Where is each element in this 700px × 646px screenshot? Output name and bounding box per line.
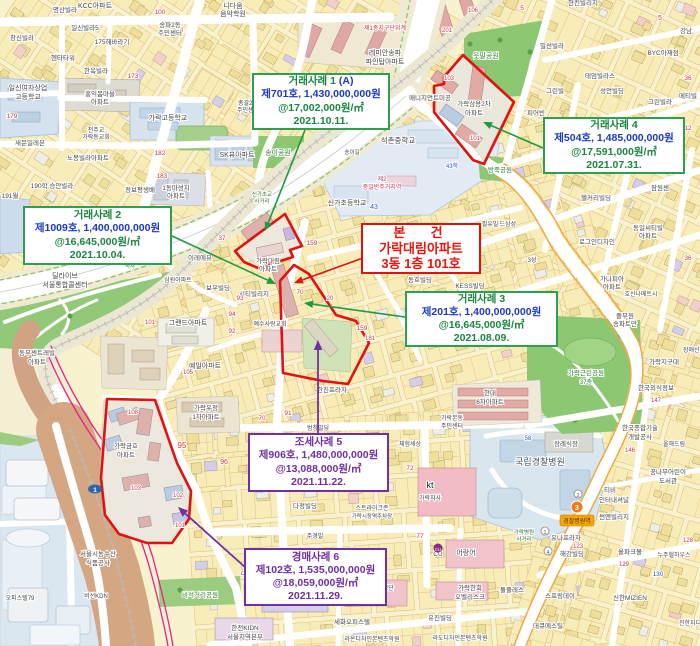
svg-text:신가초교: 신가초교 [252, 190, 272, 198]
svg-text:아파트: 아파트 [639, 231, 657, 240]
svg-text:12: 12 [684, 125, 692, 132]
svg-text:다정빌딩: 다정빌딩 [293, 501, 317, 510]
svg-text:146: 146 [625, 448, 636, 454]
svg-text:43학: 43학 [446, 162, 459, 170]
svg-text:새문일레븐: 새문일레븐 [15, 138, 45, 147]
svg-text:필유빌: 필유빌 [482, 220, 499, 228]
svg-text:둘풀레스: 둘풀레스 [500, 585, 524, 594]
svg-text:77: 77 [416, 533, 424, 540]
svg-text:101: 101 [175, 523, 186, 529]
svg-text:1동마성지: 1동마성지 [162, 183, 190, 192]
svg-text:올해드림: 올해드림 [663, 440, 685, 448]
svg-text:아파트: 아파트 [259, 264, 277, 273]
svg-text:36: 36 [684, 255, 692, 262]
svg-text:도서관: 도서관 [659, 476, 677, 485]
svg-text:노봉빌라아파트: 노봉빌라아파트 [67, 153, 109, 162]
svg-text:현대: 현대 [484, 389, 496, 397]
svg-text:108: 108 [128, 410, 139, 416]
svg-text:173: 173 [128, 73, 139, 80]
svg-text:창신빌라: 창신빌라 [10, 33, 34, 42]
svg-text:잠원센: 잠원센 [651, 183, 669, 192]
svg-text:라도디자인본텐츠학원: 라도디자인본텐츠학원 [432, 634, 487, 642]
svg-text:가락지구대: 가락지구대 [649, 357, 679, 366]
svg-text:159: 159 [307, 240, 318, 247]
svg-text:아파트: 아파트 [603, 282, 621, 291]
svg-text:가락대림: 가락대림 [256, 256, 280, 265]
svg-text:라온디자인본텐츠학원: 라온디자인본텐츠학원 [344, 635, 399, 643]
svg-text:일신빌라5: 일신빌라5 [71, 23, 99, 32]
svg-text:딜라이브: 딜라이브 [52, 271, 78, 280]
svg-text:95: 95 [178, 441, 187, 450]
svg-text:유진빌딩: 유진빌딩 [428, 613, 452, 622]
svg-text:신한MIZIEN: 신한MIZIEN [613, 593, 647, 602]
svg-text:니다움: 니다움 [223, 1, 243, 10]
svg-text:송파트만: 송파트만 [613, 319, 637, 328]
svg-text:오벨리스크: 오벨리스크 [455, 592, 485, 601]
svg-text:3: 3 [575, 505, 579, 512]
svg-text:국립경찰병원: 국립경찰병원 [515, 456, 565, 467]
svg-text:103: 103 [444, 76, 455, 82]
svg-text:보우빌딩: 보우빌딩 [206, 283, 230, 292]
svg-text:BYC아재점: BYC아재점 [647, 48, 678, 57]
svg-text:20: 20 [327, 296, 334, 302]
svg-text:경찰병원역: 경찰병원역 [563, 517, 591, 525]
svg-text:매니지먼트미공: 매니지먼트미공 [409, 93, 451, 102]
svg-text:송이공원: 송이공원 [265, 148, 291, 157]
svg-text:179: 179 [7, 113, 18, 120]
svg-text:CU: CU [435, 547, 442, 552]
svg-text:SK뷰아파트: SK뷰아파트 [219, 150, 255, 159]
svg-text:가락한회: 가락한회 [458, 583, 482, 592]
svg-text:고등학교: 고등학교 [15, 92, 41, 101]
svg-text:가락근린공원: 가락근린공원 [568, 368, 604, 377]
svg-text:182: 182 [155, 150, 166, 157]
svg-text:중일반주거지역: 중일반주거지역 [363, 183, 402, 191]
svg-text:가락병원: 가락병원 [514, 528, 534, 536]
svg-text:올파크몰: 올파크몰 [618, 547, 642, 556]
svg-text:동호빌딩: 동호빌딩 [408, 275, 432, 284]
svg-text:제1종지구단위계: 제1종지구단위계 [364, 24, 406, 32]
svg-text:181: 181 [365, 336, 376, 342]
svg-text:5: 5 [658, 15, 662, 22]
svg-text:아파트: 아파트 [28, 357, 46, 366]
svg-text:음악학원: 음악학원 [220, 9, 246, 18]
svg-text:진한지디: 진한지디 [679, 619, 700, 627]
svg-text:유나프라자: 유나프라자 [551, 533, 581, 542]
svg-text:송이길: 송이길 [344, 148, 359, 156]
svg-text:129: 129 [619, 562, 630, 568]
svg-text:헬커리빌딩: 헬커리빌딩 [581, 193, 611, 202]
svg-text:103: 103 [131, 486, 142, 492]
svg-text:128: 128 [683, 538, 694, 544]
svg-text:동부센트레빌: 동부센트레빌 [19, 348, 55, 357]
svg-text:천주교: 천주교 [88, 126, 105, 134]
svg-text:4: 4 [546, 550, 549, 556]
svg-text:홍익봄마을: 홍익봄마을 [85, 89, 115, 98]
svg-text:개발공사: 개발공사 [628, 432, 652, 441]
svg-text:한국외식정보: 한국외식정보 [638, 383, 674, 392]
svg-text:가락시장역주차장: 가락시장역주차장 [352, 512, 392, 520]
svg-text:183: 183 [157, 173, 168, 180]
svg-text:송파2동: 송파2동 [159, 20, 181, 29]
svg-text:6차아파트: 6차아파트 [476, 397, 504, 406]
svg-text:201: 201 [442, 28, 453, 34]
svg-text:한옥빌라: 한옥빌라 [84, 66, 108, 75]
svg-text:이레에뷰: 이레에뷰 [188, 253, 212, 262]
svg-text:데큐에스틸: 데큐에스틸 [533, 621, 563, 630]
svg-text:방죽공원: 방죽공원 [488, 165, 512, 174]
svg-text:헨타타워: 헨타타워 [51, 53, 75, 62]
svg-text:티비: 티비 [604, 485, 616, 494]
svg-text:석촌중학교: 석촌중학교 [381, 135, 416, 145]
svg-text:한진프라자: 한진프라자 [317, 385, 347, 394]
svg-text:70: 70 [258, 415, 266, 422]
svg-text:58: 58 [525, 436, 532, 442]
svg-text:가락금호: 가락금호 [114, 441, 138, 450]
svg-text:꿍나무어린이: 꿍나무어린이 [650, 467, 686, 476]
svg-text:장례식장: 장례식장 [554, 439, 578, 448]
svg-text:현킨빌리지: 현킨빌리지 [568, 0, 598, 7]
svg-text:메티빌: 메티빌 [679, 91, 697, 100]
svg-text:주민센터: 주민센터 [158, 28, 182, 37]
svg-text:102: 102 [173, 493, 184, 499]
svg-text:70: 70 [296, 289, 304, 296]
svg-text:96: 96 [220, 459, 228, 466]
svg-text:체험세상: 체험세상 [399, 440, 422, 448]
svg-text:명산빌라: 명산빌라 [53, 5, 77, 14]
svg-text:191월: 191월 [2, 191, 19, 200]
svg-text:147: 147 [651, 398, 662, 404]
svg-text:가락동교회: 가락동교회 [82, 133, 110, 141]
svg-text:사거리: 사거리 [516, 535, 531, 543]
svg-text:175해바라기: 175해바라기 [95, 37, 130, 46]
svg-text:36: 36 [684, 75, 692, 82]
svg-text:레미안송파: 레미안송파 [369, 48, 402, 57]
svg-text:123: 123 [573, 544, 584, 550]
svg-text:서울통합콜센터: 서울통합콜센터 [42, 280, 87, 289]
svg-text:식품공사: 식품공사 [86, 558, 110, 567]
svg-text:5: 5 [520, 5, 524, 12]
svg-text:예일아파트: 예일아파트 [189, 361, 222, 370]
svg-text:플무원: 플무원 [616, 311, 634, 320]
svg-text:91: 91 [284, 410, 292, 417]
svg-text:37충: 37충 [580, 378, 593, 386]
svg-text:2: 2 [576, 493, 579, 499]
svg-text:43: 43 [370, 204, 378, 211]
svg-text:정보평생배: 정보평생배 [125, 185, 155, 194]
svg-text:아파트: 아파트 [167, 191, 185, 200]
svg-text:72: 72 [406, 465, 414, 472]
svg-text:100: 100 [155, 9, 166, 16]
svg-text:성언빌딩: 성언빌딩 [600, 86, 624, 95]
svg-text:웃말공원: 웃말공원 [473, 51, 499, 60]
svg-text:1: 1 [543, 530, 546, 536]
svg-text:아파트: 아파트 [91, 97, 109, 106]
svg-text:92: 92 [228, 328, 236, 335]
svg-text:101: 101 [470, 136, 481, 142]
svg-text:밀선빌라: 밀선빌라 [540, 41, 564, 50]
svg-text:태엄빌라스: 태엄빌라스 [585, 71, 615, 80]
svg-text:93: 93 [236, 295, 244, 302]
svg-text:KCC아파트: KCC아파트 [78, 1, 113, 10]
svg-text:3성: 3성 [528, 256, 537, 264]
svg-text:스트라이크존: 스트라이크존 [355, 504, 389, 512]
svg-text:130: 130 [653, 571, 664, 578]
svg-text:가락삼용2차: 가락삼용2차 [457, 99, 491, 108]
svg-text:삼원아파트: 삼원아파트 [164, 276, 192, 284]
svg-text:KESS빌딩: KESS빌딩 [455, 281, 484, 290]
svg-text:kt: kt [426, 480, 434, 490]
svg-text:서울지역본부: 서울지역본부 [227, 632, 263, 641]
svg-text:가락지사: 가락지사 [419, 494, 442, 502]
svg-text:1차아파트: 1차아파트 [192, 412, 220, 421]
svg-text:37: 37 [218, 235, 226, 242]
svg-text:1: 1 [93, 487, 97, 494]
svg-text:누주헐하우스: 누주헐하우스 [657, 551, 691, 559]
svg-text:가락고등학교: 가락고등학교 [149, 113, 188, 122]
svg-text:105: 105 [183, 370, 194, 376]
svg-text:주민센터: 주민센터 [441, 422, 463, 430]
svg-text:그린빌라: 그린빌라 [648, 97, 672, 106]
svg-text:서울시농수산: 서울시농수산 [80, 549, 116, 558]
svg-text:106: 106 [468, 8, 479, 14]
svg-text:호신나메트시: 호신나메트시 [624, 290, 657, 298]
svg-text:썬엔빌리지: 썬엔빌리지 [599, 512, 629, 521]
svg-text:로그인디자인: 로그인디자인 [579, 237, 615, 246]
svg-text:비석거리공원: 비석거리공원 [182, 590, 218, 599]
svg-text:190학 승안빌라: 190학 승안빌라 [31, 181, 74, 190]
svg-text:가락본동: 가락본동 [441, 414, 464, 422]
svg-text:주경빌: 주경빌 [307, 532, 324, 540]
svg-text:장애신창: 장애신창 [683, 346, 700, 354]
svg-text:강남: 강남 [680, 26, 692, 35]
svg-text:오피스텔79: 오피스텔79 [6, 594, 35, 602]
svg-text:그린빌: 그린빌 [546, 87, 564, 95]
svg-text:비선KDN: 비선KDN [84, 592, 108, 600]
svg-text:예수사랑교회: 예수사랑교회 [253, 320, 286, 328]
svg-text:가나피아: 가나피아 [600, 274, 624, 283]
svg-text:한전KIDN: 한전KIDN [231, 623, 259, 632]
svg-text:가락우정: 가락우정 [194, 403, 218, 412]
svg-text:159: 159 [357, 325, 368, 332]
svg-text:그랜드아파트: 그랜드아파트 [169, 318, 208, 327]
svg-text:제2: 제2 [378, 175, 388, 183]
svg-text:101: 101 [145, 320, 156, 326]
svg-text:신가초등학교: 신가초등학교 [328, 198, 367, 207]
svg-text:피어빈: 피어빈 [527, 108, 545, 117]
svg-text:스프링데이: 스프링데이 [545, 591, 575, 600]
svg-text:어랑어: 어랑어 [456, 548, 475, 557]
svg-text:해강빌딩: 해강빌딩 [560, 549, 584, 558]
svg-text:세화오피스텔: 세화오피스텔 [334, 617, 370, 626]
svg-text:파인탑아파트: 파인탑아파트 [366, 57, 405, 66]
svg-text:일신여자상업: 일신여자상업 [9, 83, 48, 92]
svg-text:사거리: 사거리 [254, 197, 269, 205]
svg-text:94: 94 [228, 311, 236, 318]
svg-text:인터내셔널: 인터내셔널 [599, 495, 629, 504]
svg-text:아파트: 아파트 [117, 450, 135, 459]
svg-text:아파트: 아파트 [465, 108, 483, 117]
svg-text:한국종합기술: 한국종합기술 [622, 423, 658, 432]
svg-text:동일씨티빌: 동일씨티빌 [633, 223, 663, 232]
